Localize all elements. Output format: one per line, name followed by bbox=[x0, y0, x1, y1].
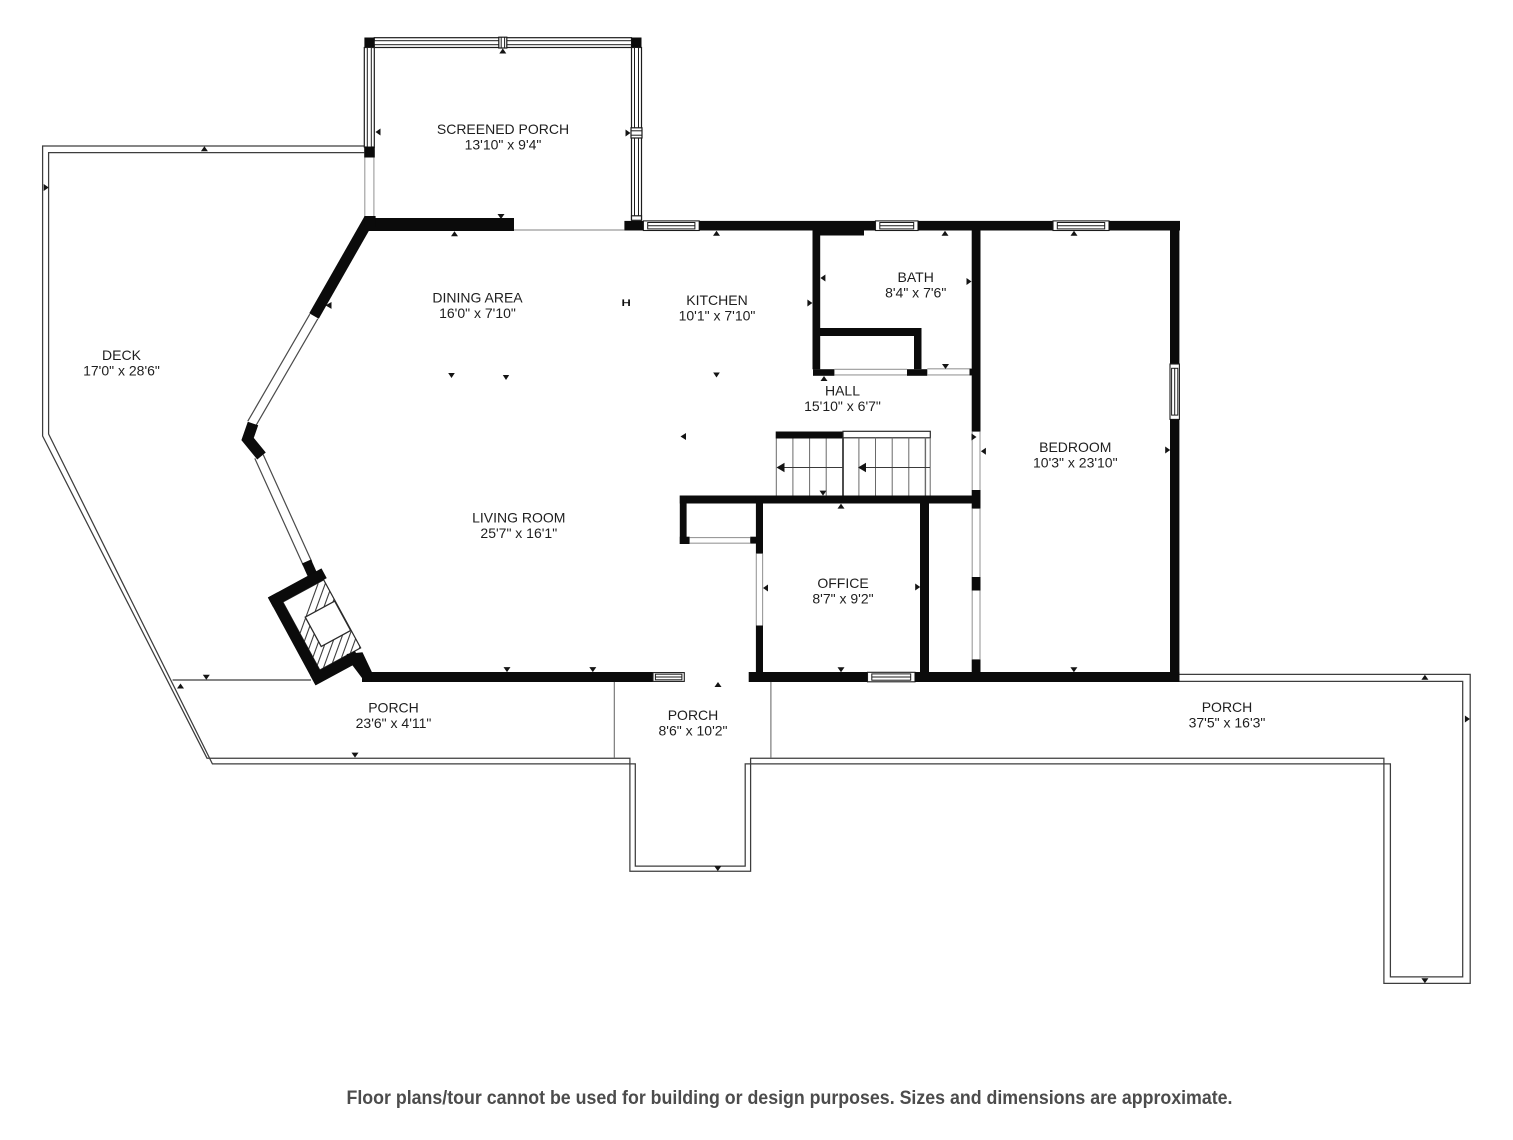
svg-text:10'3" x 23'10": 10'3" x 23'10" bbox=[1033, 455, 1118, 471]
svg-text:KITCHEN: KITCHEN bbox=[686, 292, 747, 308]
svg-text:Floor plans/tour cannot be use: Floor plans/tour cannot be used for buil… bbox=[347, 1088, 1233, 1109]
svg-text:BEDROOM: BEDROOM bbox=[1039, 439, 1111, 455]
svg-text:8'7" x 9'2": 8'7" x 9'2" bbox=[812, 590, 873, 606]
svg-text:8'4" x 7'6": 8'4" x 7'6" bbox=[885, 285, 946, 301]
svg-text:LIVING ROOM: LIVING ROOM bbox=[472, 509, 565, 525]
svg-text:13'10" x 9'4": 13'10" x 9'4" bbox=[465, 137, 542, 153]
svg-text:16'0" x 7'10": 16'0" x 7'10" bbox=[439, 305, 516, 321]
svg-text:BATH: BATH bbox=[898, 269, 934, 285]
svg-text:10'1" x 7'10": 10'1" x 7'10" bbox=[679, 307, 756, 323]
svg-text:SCREENED PORCH: SCREENED PORCH bbox=[437, 121, 569, 137]
svg-text:DECK: DECK bbox=[102, 347, 142, 363]
svg-text:OFFICE: OFFICE bbox=[817, 575, 868, 591]
svg-text:25'7" x 16'1": 25'7" x 16'1" bbox=[480, 525, 557, 541]
svg-text:8'6" x 10'2": 8'6" x 10'2" bbox=[659, 722, 728, 738]
svg-text:15'10" x 6'7": 15'10" x 6'7" bbox=[804, 398, 881, 414]
svg-text:HALL: HALL bbox=[825, 383, 860, 399]
svg-text:DINING AREA: DINING AREA bbox=[432, 289, 523, 305]
svg-text:PORCH: PORCH bbox=[668, 707, 719, 723]
svg-text:17'0" x 28'6": 17'0" x 28'6" bbox=[83, 363, 160, 379]
svg-text:PORCH: PORCH bbox=[1202, 699, 1253, 715]
svg-text:PORCH: PORCH bbox=[368, 700, 419, 716]
svg-text:37'5" x 16'3": 37'5" x 16'3" bbox=[1189, 715, 1266, 731]
svg-text:23'6" x 4'11": 23'6" x 4'11" bbox=[356, 715, 432, 731]
